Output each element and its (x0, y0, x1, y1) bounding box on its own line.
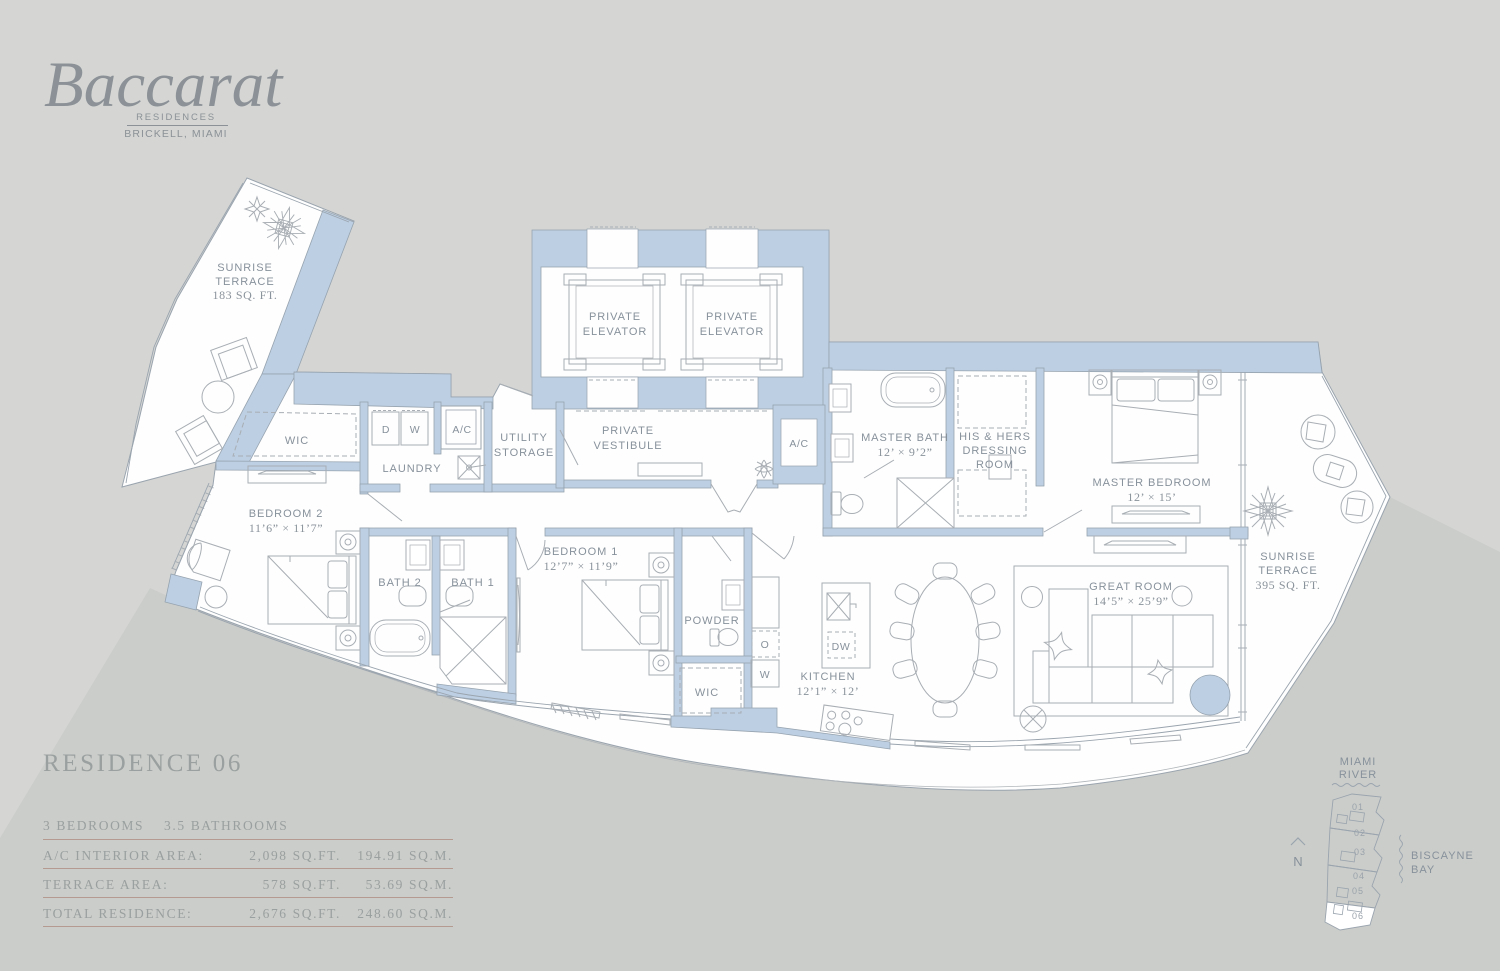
svg-text:2,098 SQ.FT.: 2,098 SQ.FT. (249, 848, 341, 863)
svg-text:04: 04 (1353, 871, 1365, 881)
svg-text:BAY: BAY (1411, 864, 1435, 876)
svg-text:SUNRISE: SUNRISE (217, 262, 273, 274)
svg-text:GREAT ROOM: GREAT ROOM (1089, 581, 1173, 593)
svg-text:KITCHEN: KITCHEN (801, 671, 856, 683)
svg-text:BISCAYNE: BISCAYNE (1411, 850, 1474, 862)
svg-text:194.91 SQ.M.: 194.91 SQ.M. (357, 848, 453, 863)
svg-text:12’1” × 12’: 12’1” × 12’ (797, 684, 860, 698)
svg-text:A/C: A/C (789, 438, 808, 450)
svg-text:TERRACE: TERRACE (215, 276, 274, 288)
svg-text:2,676 SQ.FT.: 2,676 SQ.FT. (249, 906, 341, 921)
svg-text:TERRACE AREA:: TERRACE AREA: (43, 877, 168, 892)
svg-text:PRIVATE: PRIVATE (602, 425, 654, 437)
svg-text:3 BEDROOMS 3.5 BATHROOMS: 3 BEDROOMS 3.5 BATHROOMS (43, 818, 288, 833)
svg-text:D: D (382, 424, 390, 436)
svg-text:12’ × 15’: 12’ × 15’ (1127, 490, 1176, 504)
svg-text:VESTIBULE: VESTIBULE (593, 440, 662, 452)
svg-text:TERRACE: TERRACE (1258, 565, 1317, 577)
svg-text:ROOM: ROOM (976, 459, 1014, 471)
svg-text:BEDROOM 2: BEDROOM 2 (249, 508, 324, 520)
svg-text:WIC: WIC (285, 435, 309, 447)
svg-text:12’7” × 11’9”: 12’7” × 11’9” (544, 559, 619, 573)
svg-text:PRIVATE: PRIVATE (706, 311, 758, 323)
svg-text:W: W (410, 424, 421, 436)
svg-text:HIS & HERS: HIS & HERS (959, 431, 1031, 443)
svg-text:UTILITY: UTILITY (500, 432, 548, 444)
svg-text:O: O (761, 639, 770, 651)
svg-text:12’ × 9’2”: 12’ × 9’2” (877, 445, 932, 459)
svg-text:MASTER BEDROOM: MASTER BEDROOM (1092, 477, 1211, 489)
svg-text:395 SQ. FT.: 395 SQ. FT. (1255, 578, 1320, 592)
svg-text:578 SQ.FT.: 578 SQ.FT. (263, 877, 341, 892)
svg-text:WIC: WIC (695, 687, 719, 699)
svg-text:BEDROOM 1: BEDROOM 1 (544, 546, 619, 558)
svg-text:RIVER: RIVER (1339, 769, 1377, 781)
svg-text:11’6” × 11’7”: 11’6” × 11’7” (249, 521, 323, 535)
svg-text:ELEVATOR: ELEVATOR (700, 326, 764, 338)
svg-text:LAUNDRY: LAUNDRY (382, 463, 441, 475)
svg-text:ELEVATOR: ELEVATOR (583, 326, 647, 338)
svg-text:RESIDENCES: RESIDENCES (136, 112, 216, 123)
svg-text:BRICKELL, MIAMI: BRICKELL, MIAMI (124, 128, 227, 140)
svg-text:A/C INTERIOR AREA:: A/C INTERIOR AREA: (43, 848, 204, 863)
svg-text:06: 06 (1352, 911, 1364, 921)
svg-text:248.60 SQ.M.: 248.60 SQ.M. (357, 906, 453, 921)
svg-text:05: 05 (1352, 886, 1364, 896)
svg-text:MASTER BATH: MASTER BATH (861, 432, 949, 444)
svg-text:03: 03 (1354, 847, 1366, 857)
svg-text:14’5” × 25’9”: 14’5” × 25’9” (1093, 594, 1168, 608)
svg-text:53.69 SQ.M.: 53.69 SQ.M. (366, 877, 453, 892)
svg-text:BATH 1: BATH 1 (451, 577, 494, 589)
svg-text:DRESSING: DRESSING (962, 445, 1027, 457)
svg-text:SUNRISE: SUNRISE (1260, 551, 1316, 563)
svg-text:Baccarat: Baccarat (44, 49, 284, 121)
svg-text:W: W (760, 669, 771, 681)
svg-text:RESIDENCE 06: RESIDENCE 06 (43, 750, 243, 777)
svg-text:BATH 2: BATH 2 (378, 577, 421, 589)
svg-text:PRIVATE: PRIVATE (589, 311, 641, 323)
svg-text:STORAGE: STORAGE (494, 447, 554, 459)
svg-text:A/C: A/C (452, 424, 471, 436)
svg-text:01: 01 (1352, 802, 1364, 812)
svg-text:MIAMI: MIAMI (1340, 756, 1377, 768)
svg-text:POWDER: POWDER (684, 615, 739, 627)
svg-text:N: N (1293, 854, 1302, 869)
svg-text:02: 02 (1354, 828, 1366, 838)
svg-text:DW: DW (832, 641, 851, 653)
svg-text:TOTAL RESIDENCE:: TOTAL RESIDENCE: (43, 906, 192, 921)
svg-text:183 SQ. FT.: 183 SQ. FT. (212, 288, 277, 302)
